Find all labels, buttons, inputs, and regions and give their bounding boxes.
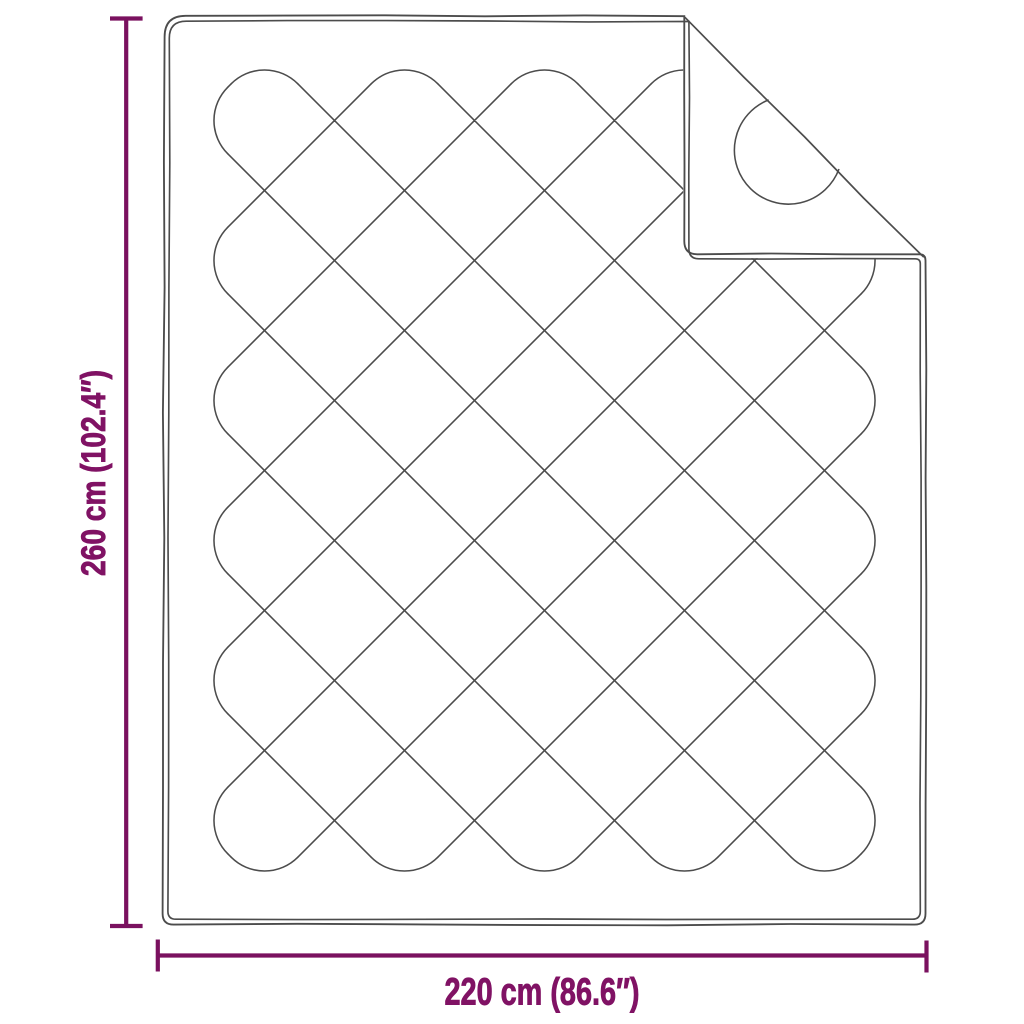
svg-text:220 cm (86.6″): 220 cm (86.6″): [445, 971, 640, 1013]
svg-text:260 cm (102.4″): 260 cm (102.4″): [75, 370, 113, 576]
